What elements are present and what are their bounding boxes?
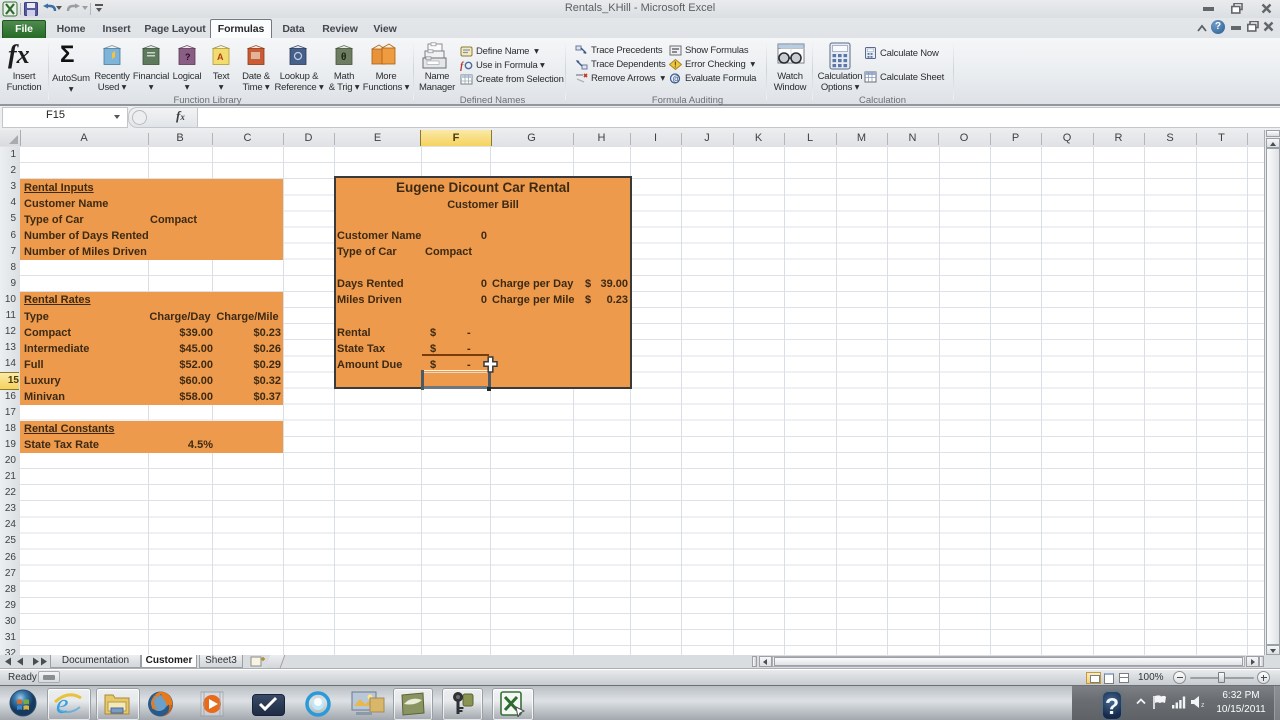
svg-text:A: A: [217, 52, 224, 62]
svg-text:?: ?: [185, 52, 191, 62]
svg-text:!: !: [674, 61, 677, 70]
svg-text:e: e: [56, 689, 68, 719]
svg-text:θ: θ: [341, 52, 346, 63]
svg-text:f: f: [460, 61, 465, 71]
svg-text:@: @: [673, 75, 681, 84]
svg-text:z: z: [1201, 702, 1205, 709]
